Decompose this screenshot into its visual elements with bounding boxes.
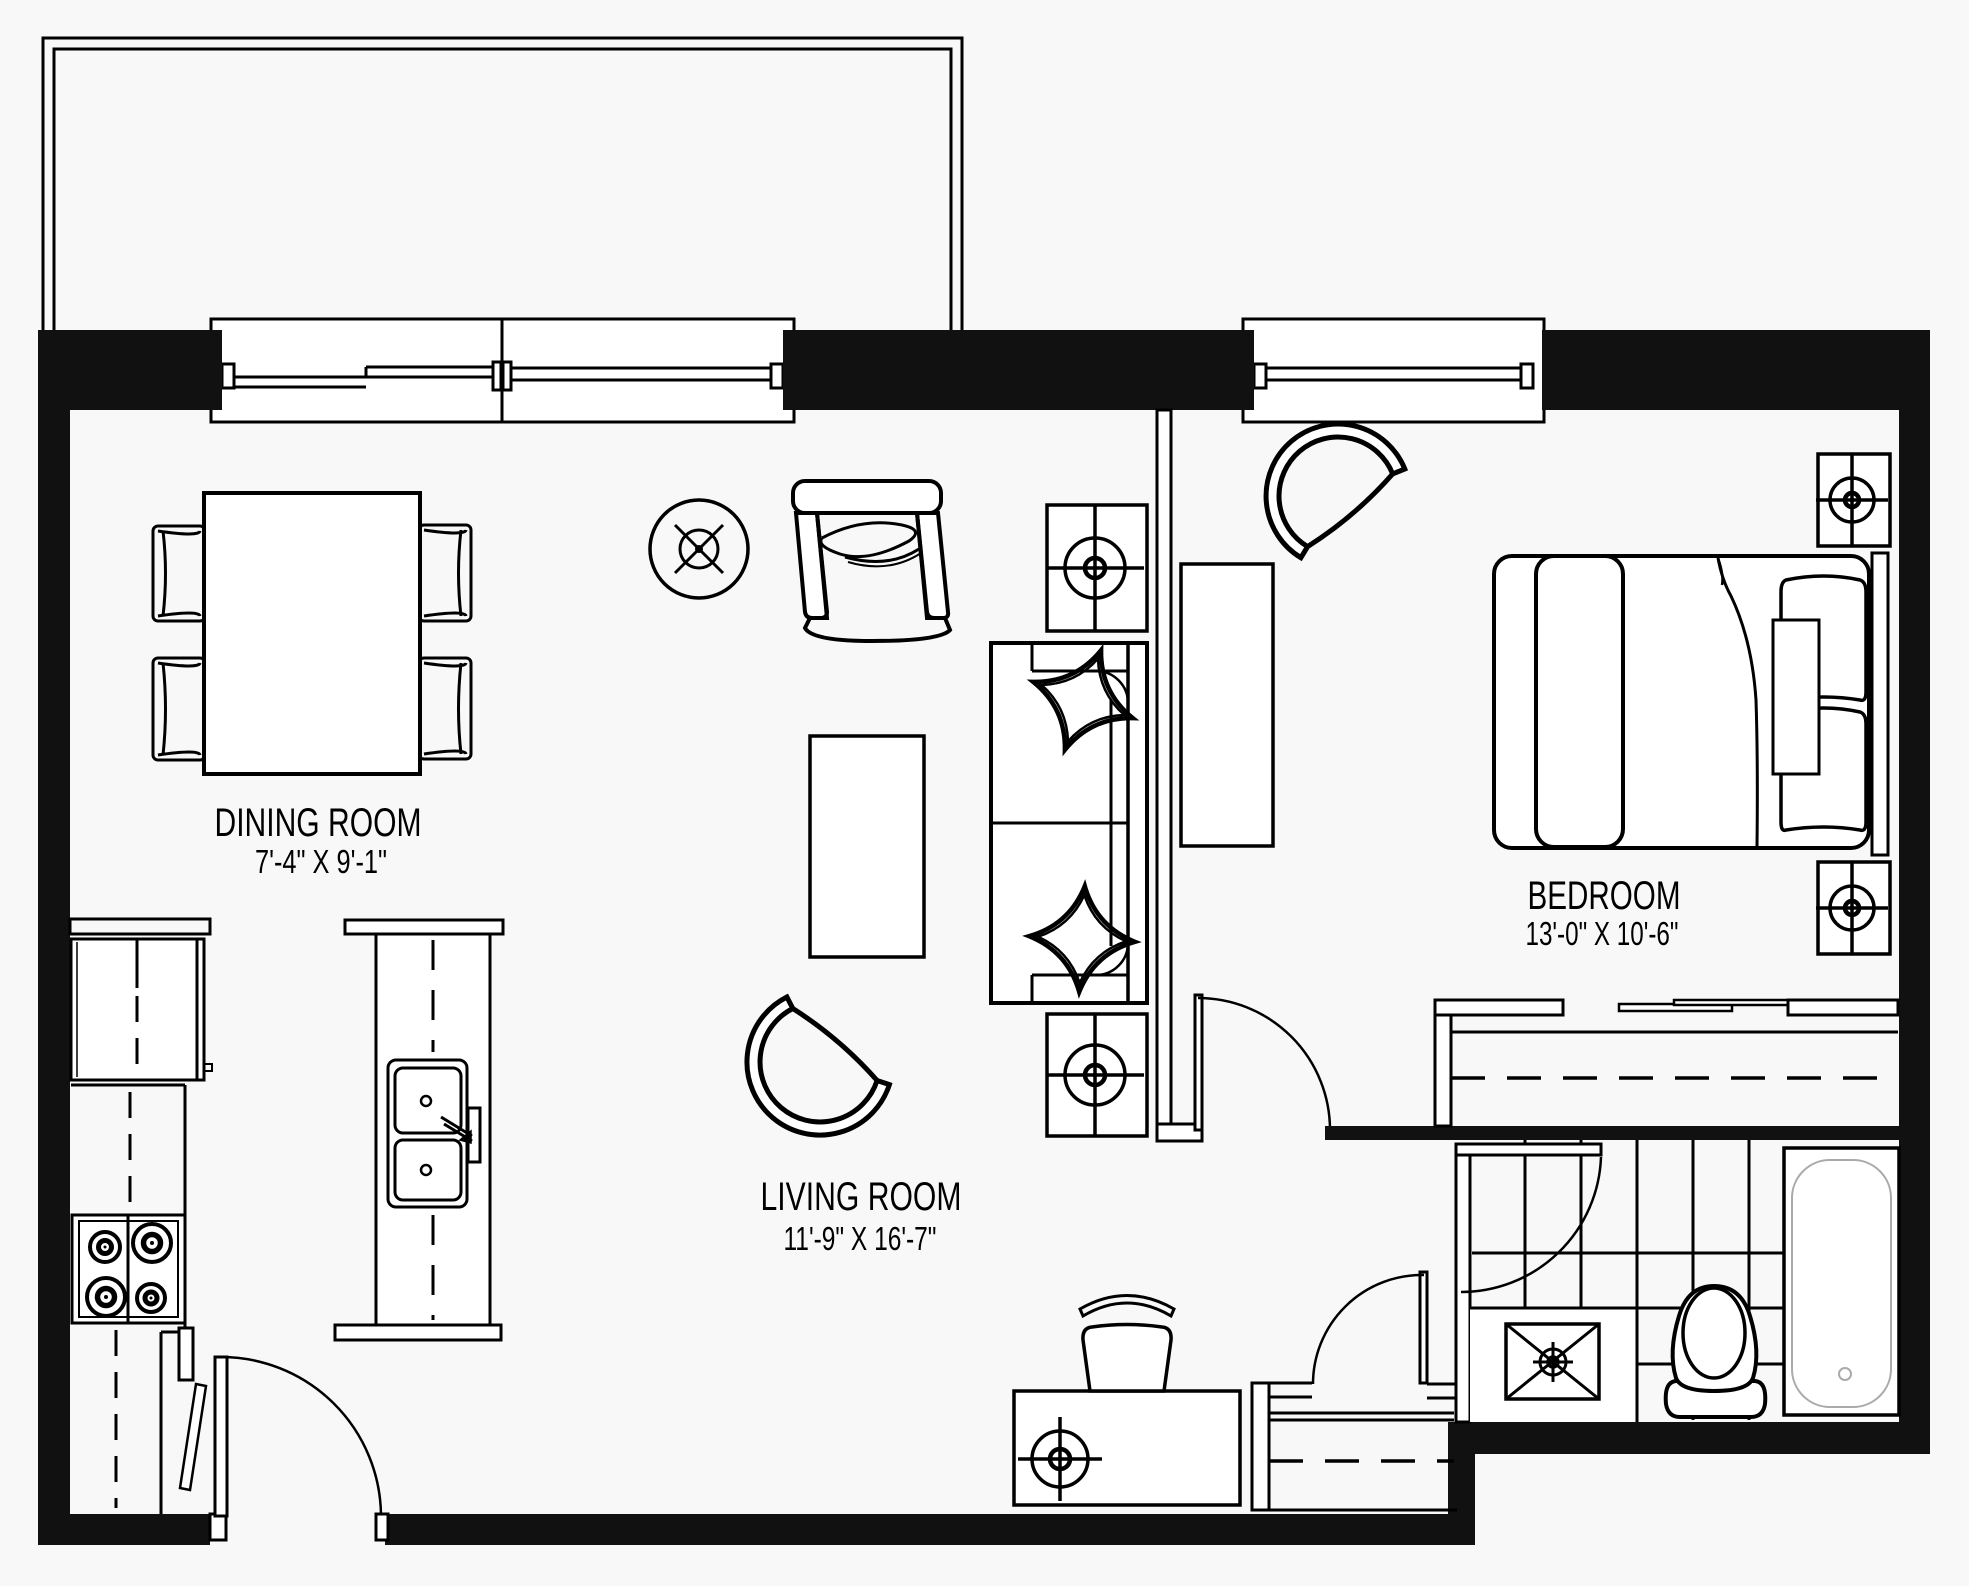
svg-text:DINING ROOM: DINING ROOM — [215, 801, 422, 845]
svg-text:11'-9" X 16'-7": 11'-9" X 16'-7" — [784, 1220, 937, 1257]
svg-text:BEDROOM: BEDROOM — [1528, 874, 1681, 918]
svg-text:7'-4" X 9'-1": 7'-4" X 9'-1" — [255, 843, 387, 880]
svg-text:LIVING ROOM: LIVING ROOM — [761, 1175, 962, 1219]
svg-text:13'-0" X 10'-6": 13'-0" X 10'-6" — [1526, 915, 1679, 952]
